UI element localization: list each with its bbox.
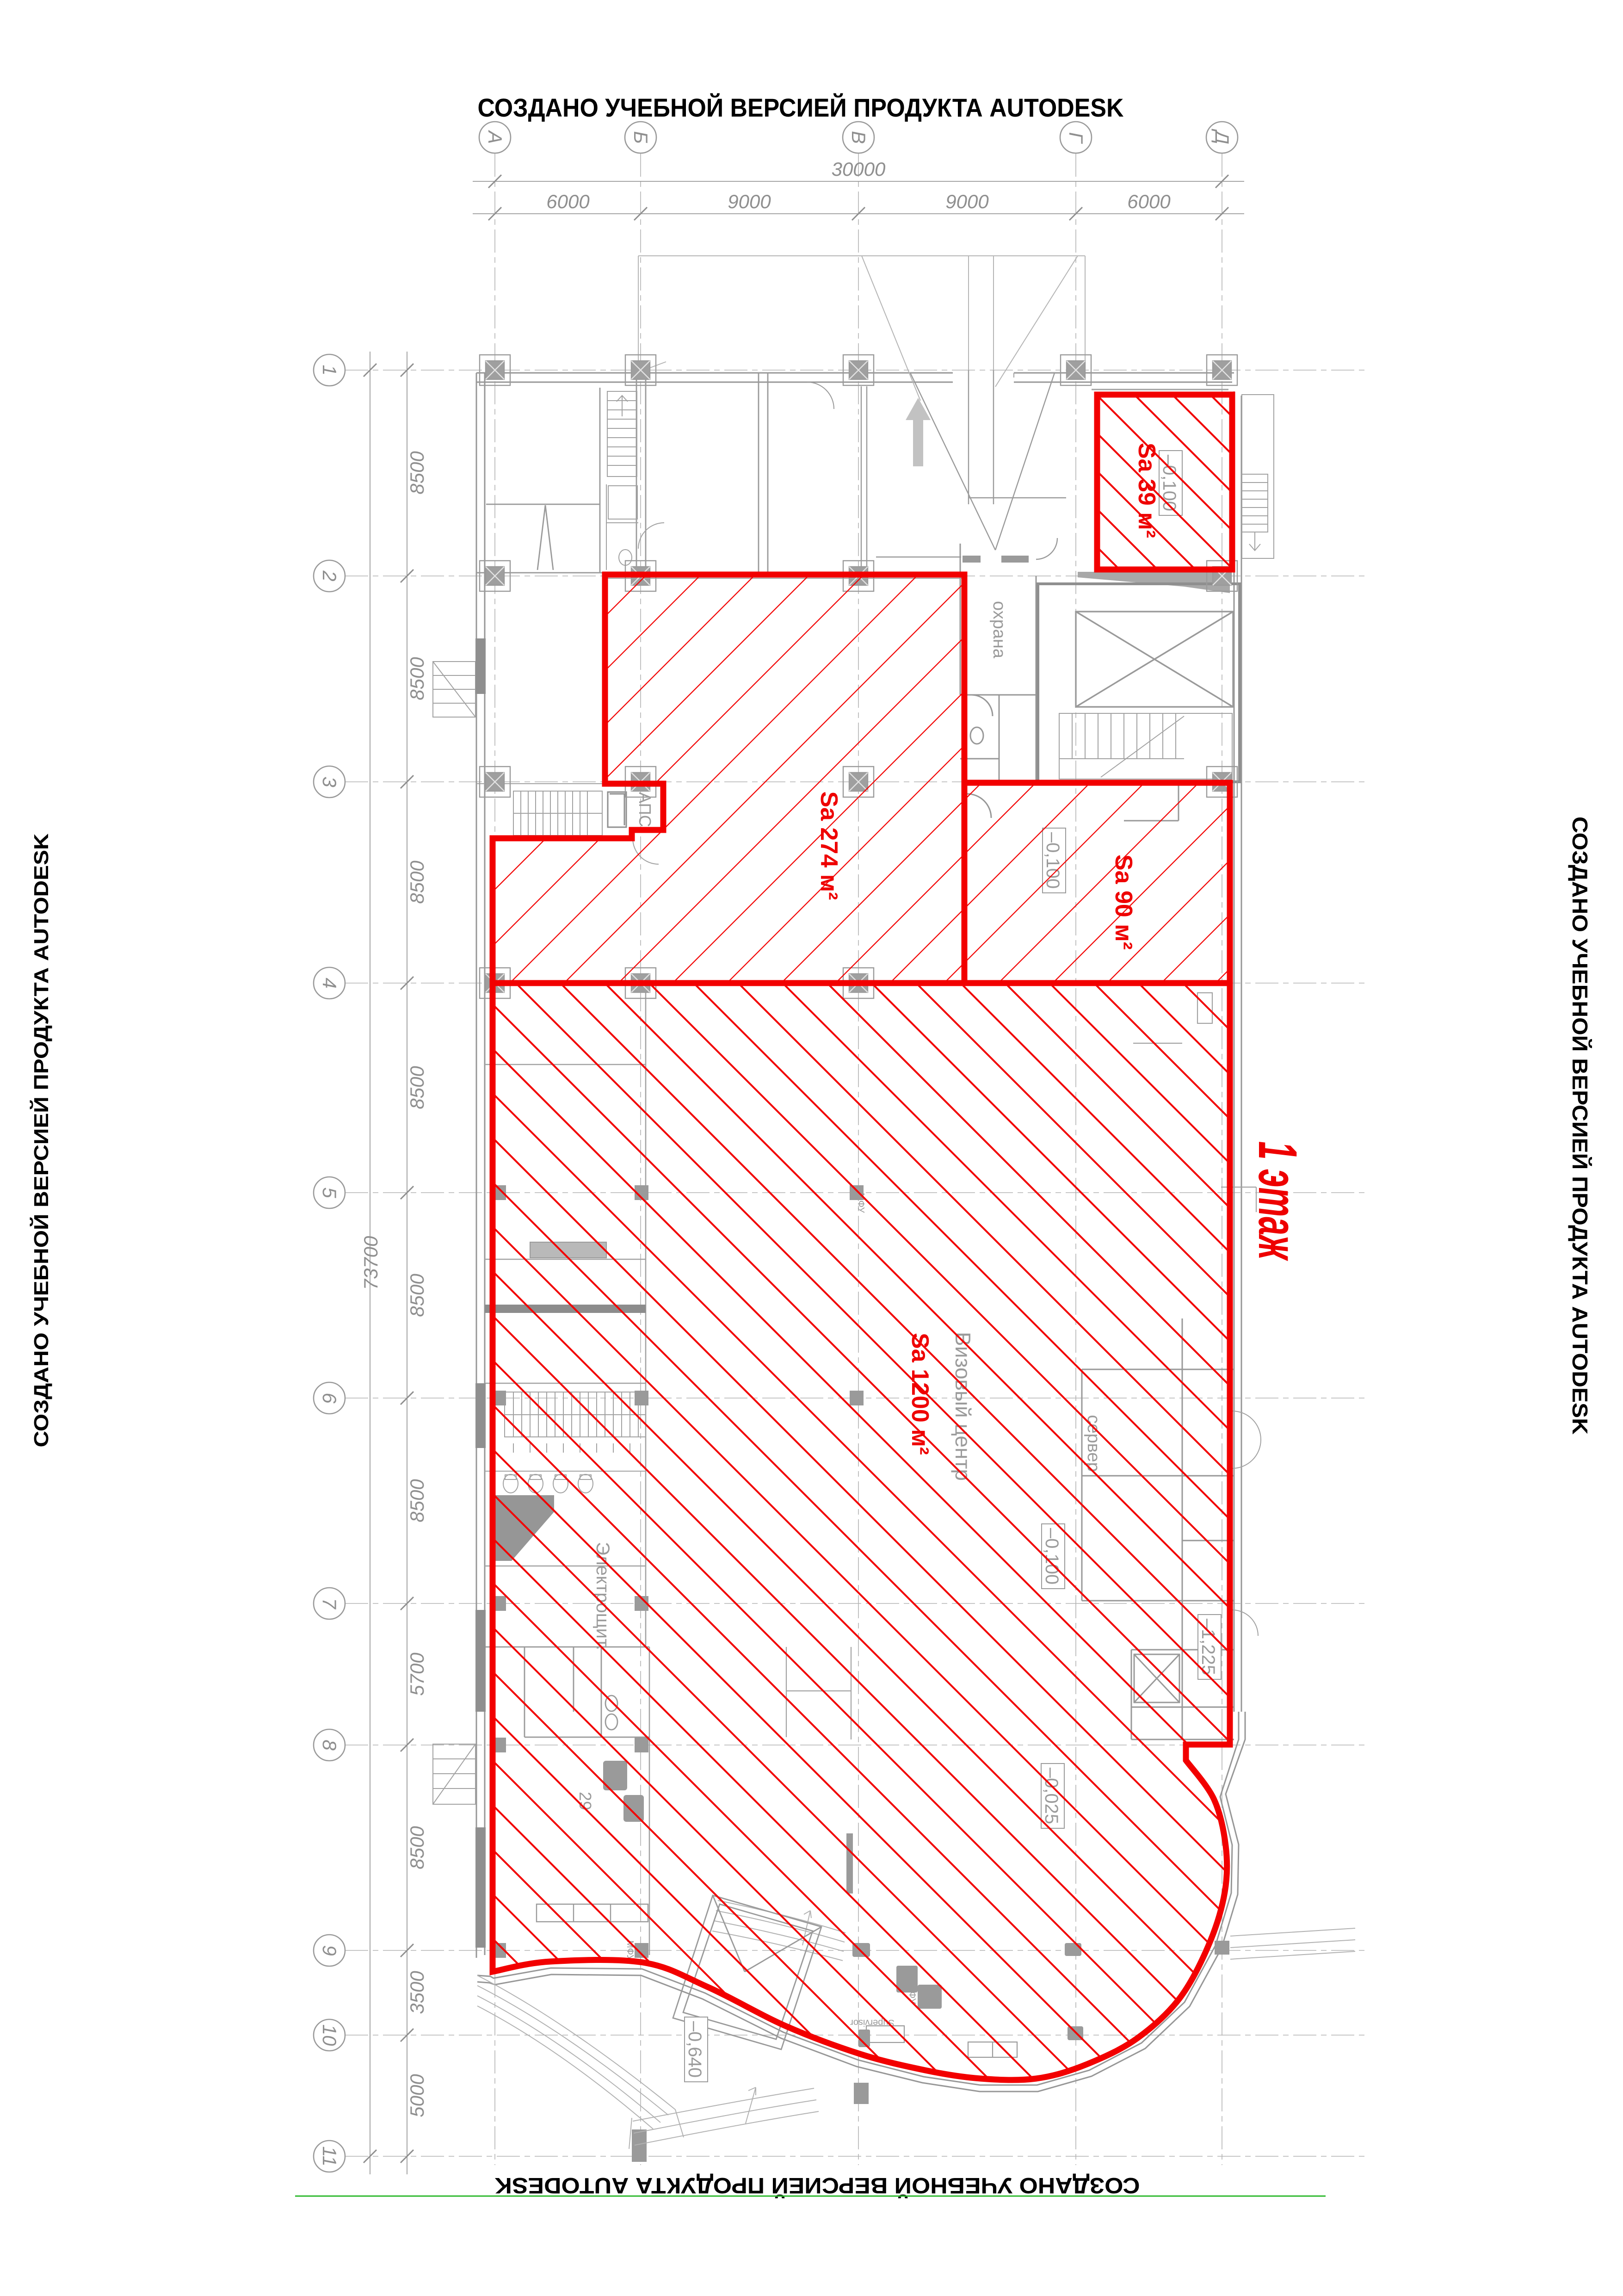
svg-text:8500: 8500: [406, 1479, 428, 1522]
svg-text:5: 5: [319, 1187, 340, 1198]
svg-text:2: 2: [319, 570, 340, 581]
svg-text:73700: 73700: [360, 1236, 382, 1290]
svg-text:6000: 6000: [546, 191, 590, 212]
svg-text:АПС: АПС: [636, 792, 654, 827]
svg-text:8500: 8500: [406, 860, 428, 904]
svg-text:30000: 30000: [832, 158, 886, 180]
svg-text:6000: 6000: [1127, 191, 1171, 212]
svg-text:СОЗДАНО УЧЕБНОЙ ВЕРСИЕЙ ПРОДУК: СОЗДАНО УЧЕБНОЙ ВЕРСИЕЙ ПРОДУКТА AUTODES…: [1568, 817, 1592, 1435]
svg-text:5700: 5700: [406, 1652, 428, 1696]
svg-text:9000: 9000: [945, 191, 989, 212]
svg-text:8500: 8500: [406, 1066, 428, 1109]
svg-text:В: В: [848, 131, 870, 144]
svg-text:6: 6: [319, 1392, 340, 1404]
svg-text:9000: 9000: [728, 191, 771, 212]
svg-text:8500: 8500: [406, 451, 428, 495]
svg-text:8500: 8500: [406, 1274, 428, 1317]
svg-text:11: 11: [319, 2146, 340, 2166]
svg-text:–0,640: –0,640: [685, 2021, 705, 2078]
svg-text:Б: Б: [630, 131, 652, 143]
svg-text:8500: 8500: [406, 1826, 428, 1869]
svg-text:5000: 5000: [406, 2074, 428, 2117]
svg-text:8500: 8500: [406, 657, 428, 700]
svg-text:А: А: [484, 130, 506, 144]
svg-text:3: 3: [319, 776, 340, 787]
svg-text:1: 1: [319, 365, 340, 375]
svg-text:Sа 1200 м²: Sа 1200 м²: [907, 1333, 933, 1455]
svg-text:7: 7: [319, 1598, 340, 1609]
svg-text:1 этаж: 1 этаж: [1247, 1141, 1308, 1261]
svg-text:Sа 39 м²: Sа 39 м²: [1133, 443, 1160, 538]
svg-text:Г: Г: [1065, 132, 1087, 144]
svg-text:10: 10: [319, 2024, 340, 2046]
svg-text:СОЗДАНО УЧЕБНОЙ ВЕРСИЕЙ ПРОДУК: СОЗДАНО УЧЕБНОЙ ВЕРСИЕЙ ПРОДУКТА AUTODES…: [29, 833, 53, 1447]
svg-text:9: 9: [319, 1945, 340, 1956]
svg-text:Sа 90 м²: Sа 90 м²: [1110, 854, 1137, 950]
svg-text:Sа 274 м²: Sа 274 м²: [815, 791, 842, 900]
svg-text:охрана: охрана: [989, 601, 1009, 659]
svg-text:СОЗДАНО УЧЕБНОЙ ВЕРСИЕЙ ПРОДУК: СОЗДАНО УЧЕБНОЙ ВЕРСИЕЙ ПРОДУКТА AUTODES…: [478, 93, 1124, 122]
svg-text:4: 4: [319, 978, 340, 988]
svg-text:СОЗДАНО УЧЕБНОЙ ВЕРСИЕЙ ПРОДУК: СОЗДАНО УЧЕБНОЙ ВЕРСИЕЙ ПРОДУКТА AUTODES…: [494, 2173, 1140, 2198]
svg-text:8: 8: [319, 1739, 340, 1751]
svg-text:3500: 3500: [406, 1971, 428, 2014]
svg-text:Д: Д: [1211, 129, 1233, 144]
